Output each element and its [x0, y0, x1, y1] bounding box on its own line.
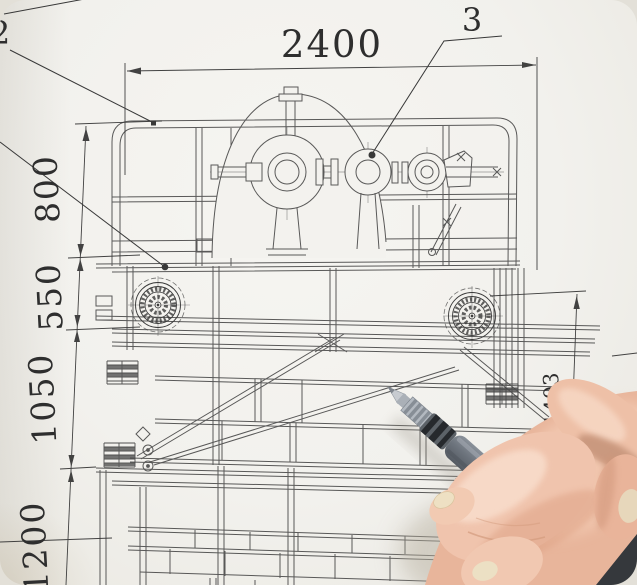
- spring-stack-left-lower: [104, 443, 135, 467]
- callout-2-label: 2: [0, 14, 10, 52]
- callout-3-label: 3: [462, 1, 482, 39]
- tie-rod: [431, 204, 461, 255]
- dim-1050-label: 1050: [21, 352, 65, 446]
- spring-stack-left-upper: [107, 361, 138, 384]
- gear-small: [408, 153, 446, 191]
- machine-drawing-scene: 2400 800 550 1050 1200 1403 2 3: [0, 0, 637, 585]
- breather-cap: [284, 87, 298, 94]
- rail-bolt-plate: [197, 239, 213, 252]
- gearbox: [210, 87, 504, 258]
- dim-2400-label: 2400: [281, 23, 383, 66]
- blueprint-photo: 2400 800 550 1050 1200 1403 2 3: [0, 0, 637, 585]
- dim-1200-label: 1200: [13, 500, 57, 585]
- gear-mid: [345, 149, 391, 195]
- dim-550-label: 550: [28, 261, 71, 332]
- dim-800-label: 800: [25, 153, 68, 224]
- output-housing: [444, 151, 472, 187]
- leader-callout-3: [372, 36, 502, 154]
- right-column: [494, 268, 524, 408]
